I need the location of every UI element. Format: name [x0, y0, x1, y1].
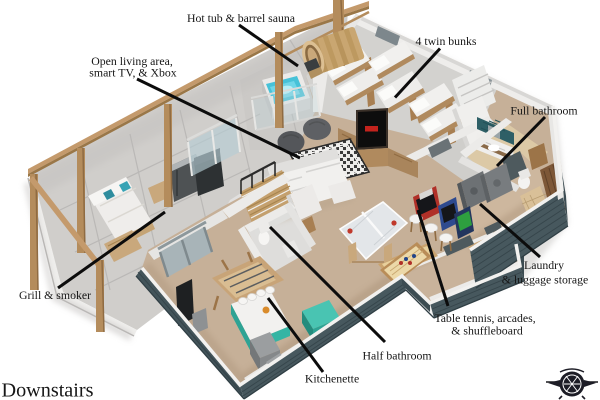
svg-text:Laundry: Laundry — [524, 258, 564, 272]
svg-text:Kitchenette: Kitchenette — [305, 372, 359, 386]
svg-text:Half bathroom: Half bathroom — [362, 349, 431, 363]
svg-text:& shuffleboard: & shuffleboard — [451, 324, 523, 338]
svg-text:smart TV, & Xbox: smart TV, & Xbox — [89, 65, 176, 79]
svg-text:Downstairs: Downstairs — [2, 380, 94, 400]
svg-text:Full bathroom: Full bathroom — [510, 104, 577, 118]
svg-text:4 twin bunks: 4 twin bunks — [416, 34, 477, 48]
svg-text:& luggage storage: & luggage storage — [502, 273, 588, 287]
svg-text:Grill & smoker: Grill & smoker — [19, 288, 91, 302]
svg-text:Hot tub & barrel sauna: Hot tub & barrel sauna — [187, 11, 296, 25]
